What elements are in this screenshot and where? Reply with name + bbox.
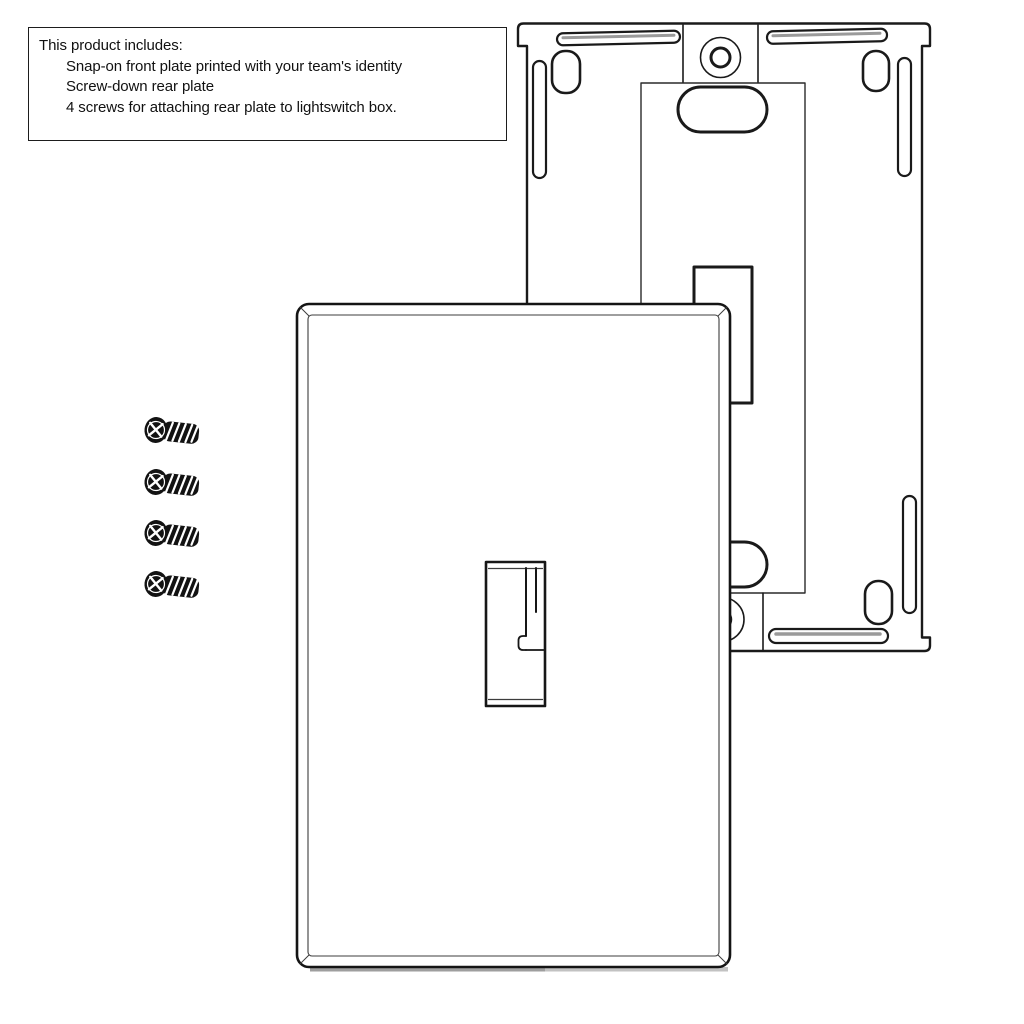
screw-icon bbox=[143, 570, 200, 602]
toggle-hole-icon bbox=[486, 562, 545, 706]
screw-icon bbox=[143, 416, 200, 448]
front-plate-drawing bbox=[297, 304, 730, 972]
screws-drawing bbox=[143, 416, 200, 602]
diagram-canvas bbox=[0, 0, 1024, 1024]
product-diagram-page: { "info_box": { "title": "This product i… bbox=[0, 0, 1024, 1024]
screw-icon bbox=[143, 519, 200, 551]
top-screw-boss-icon bbox=[701, 38, 741, 78]
screw-icon bbox=[143, 468, 200, 500]
